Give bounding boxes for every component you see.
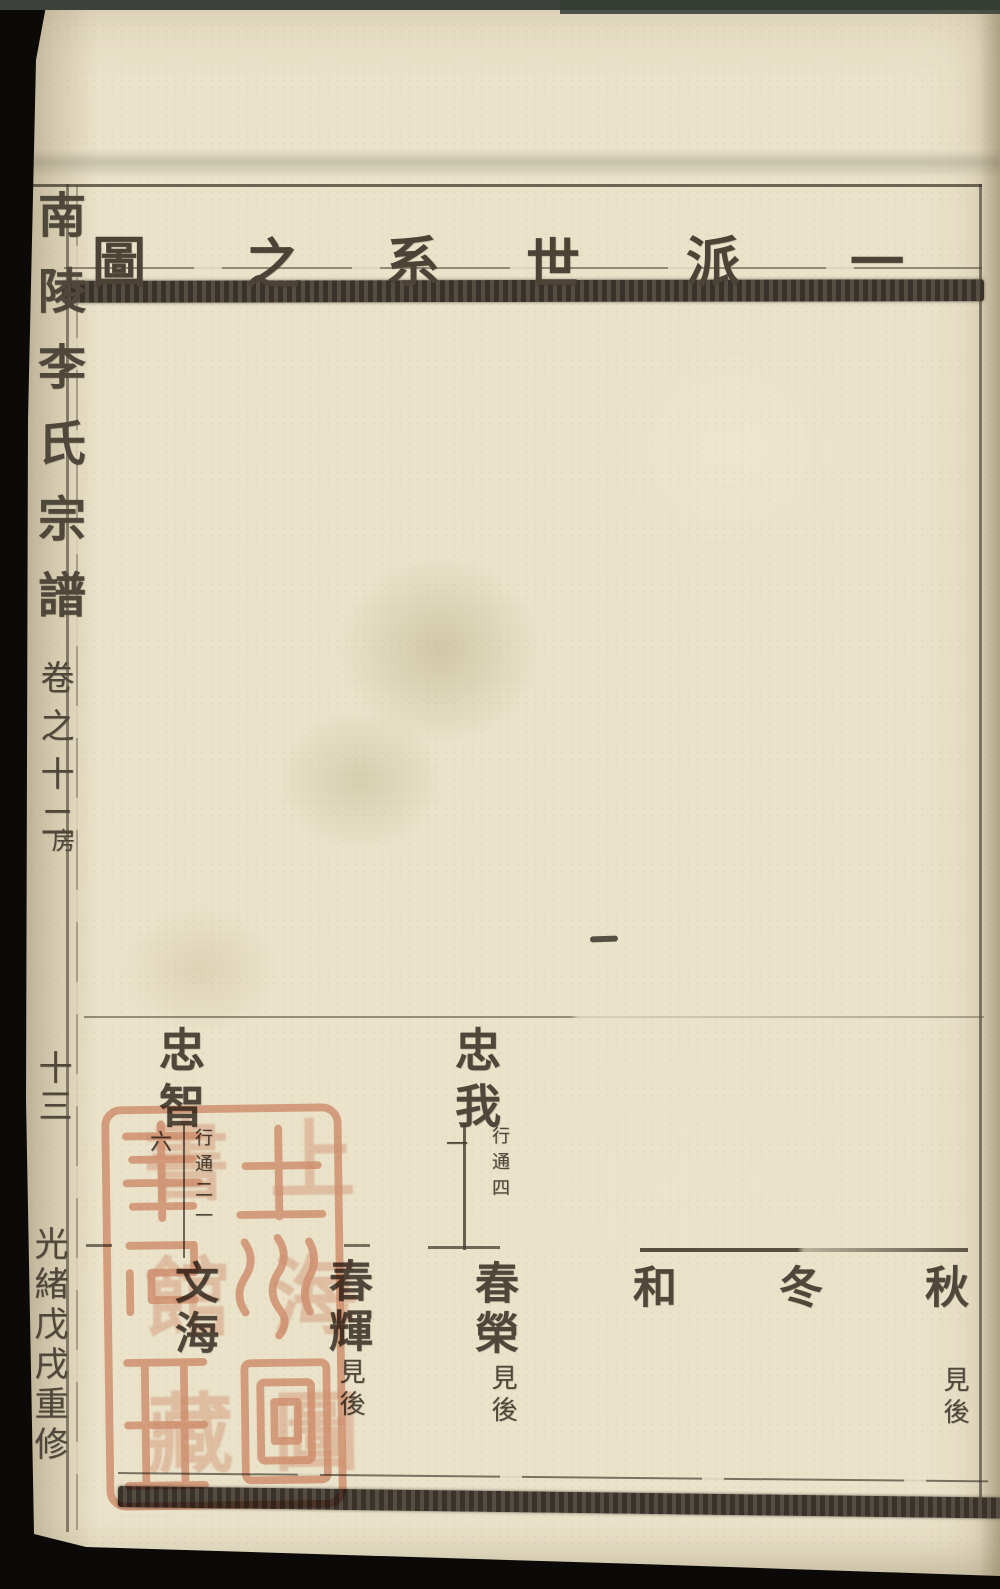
generation-divider-line [84, 1016, 984, 1018]
ancestor-name: 忠智 [146, 1026, 212, 1138]
descendant-note: 見後 [936, 1366, 973, 1430]
descendant-name: 和 [618, 1264, 682, 1314]
descendant-name: 春輝 [314, 1258, 378, 1358]
scanner-bed-edge [560, 0, 1000, 14]
frame-right-line [979, 184, 982, 1510]
page-header-title-char: 世 [526, 220, 580, 299]
paper-smear [0, 150, 1000, 176]
sibling-line [428, 1246, 500, 1249]
bottom-ink-band [118, 1486, 1000, 1519]
spine-volume: 卷之十二 [30, 660, 79, 852]
stain [240, 680, 480, 880]
sibling-line [344, 1244, 370, 1247]
descendant-name: 春榮 [460, 1260, 524, 1360]
ancestor-rank-label: 行通二一 [189, 1128, 215, 1232]
ancestor-name: 忠我 [442, 1026, 508, 1138]
descent-line [183, 1124, 185, 1258]
spine-edition-note: 光緒戊戌重修 [24, 1226, 73, 1466]
stray-ink-mark [590, 936, 618, 943]
ancestor-rank-label: 行通四 [486, 1126, 512, 1204]
header-ink-band [62, 279, 984, 303]
descendant-name: 秋 [910, 1264, 974, 1314]
descendant-name: 冬 [764, 1264, 828, 1314]
page-header-title-char: 派 [686, 218, 740, 297]
seal-glyph: 藏 [119, 1388, 245, 1476]
spine-title: 南陵李氏宗譜 [22, 190, 92, 646]
spine-page-number: 十三 [28, 1050, 77, 1126]
sibling-line [86, 1244, 112, 1247]
ancestor-order-label: 六 [142, 1130, 174, 1152]
paper-page: 一 派 世 系 之 圖 南陵李氏宗譜 卷之十二 房 十三 光緒戊戌重修 忠智 六… [0, 0, 1000, 1589]
page-header-title-char: 系 [386, 218, 440, 297]
stain [300, 520, 580, 780]
descendant-note: 見後 [332, 1358, 369, 1422]
page-edge-shading [978, 0, 1000, 1589]
ancestor-order-label: 一 [438, 1132, 470, 1154]
frame-top-line [30, 184, 982, 187]
seal-glyph: 上 [241, 1114, 367, 1202]
header-underline [64, 267, 982, 269]
sibling-line [640, 1248, 968, 1252]
descendant-name: 文海 [160, 1260, 224, 1360]
page-header-title-char: 一 [850, 218, 904, 297]
stain [560, 300, 900, 600]
spine-branch: 房 [44, 828, 79, 852]
page-header-title-char: 圖 [92, 218, 146, 297]
bottom-frame-line [118, 1472, 988, 1482]
page-header-title-char: 之 [246, 220, 300, 299]
descendant-note: 見後 [484, 1364, 521, 1428]
